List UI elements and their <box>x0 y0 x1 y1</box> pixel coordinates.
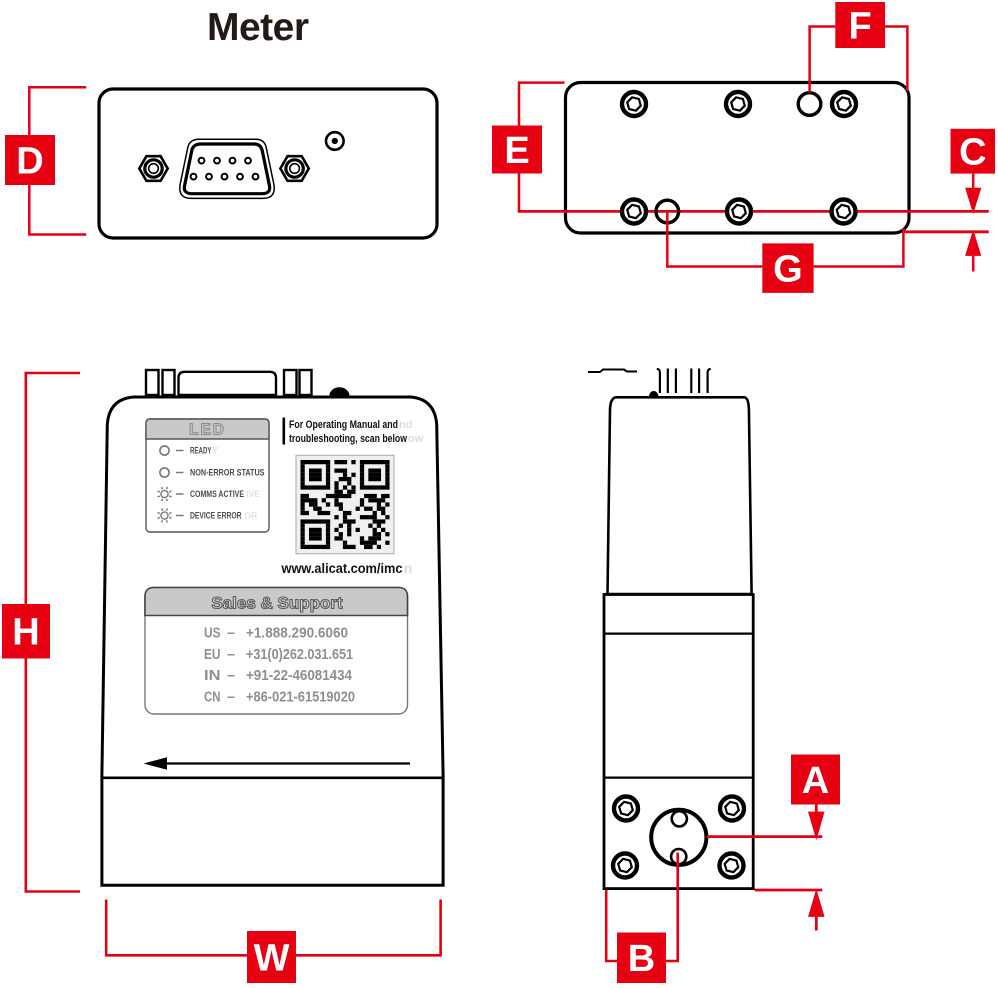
svg-text:B: B <box>628 938 655 980</box>
svg-text:+1.888.290.6060: +1.888.290.6060 <box>246 626 348 642</box>
svg-text:E: E <box>504 130 529 172</box>
svg-text:OR: OR <box>244 511 258 521</box>
svg-text:Y: Y <box>212 446 218 456</box>
svg-text:DEVICE ERROR: DEVICE ERROR <box>190 511 242 521</box>
svg-text:IVE: IVE <box>246 489 260 499</box>
svg-text:Sales & Support: Sales & Support <box>211 594 343 613</box>
svg-text:–: – <box>227 647 235 663</box>
svg-text:A: A <box>802 760 829 802</box>
svg-text:+31(0)262.031.651: +31(0)262.031.651 <box>246 647 353 663</box>
svg-text:IN: IN <box>204 668 221 684</box>
svg-text:C: C <box>959 132 986 174</box>
svg-text:+86-021-61519020: +86-021-61519020 <box>246 689 355 705</box>
svg-text:n: n <box>404 561 412 576</box>
svg-text:troubleshooting, scan below: troubleshooting, scan below <box>289 433 407 445</box>
svg-text:NON-ERROR STATUS: NON-ERROR STATUS <box>190 468 265 478</box>
svg-text:–: – <box>227 689 235 705</box>
svg-text:www.alicat.com/imc: www.alicat.com/imc <box>281 561 403 576</box>
svg-text:US: US <box>204 626 221 642</box>
svg-text:ow: ow <box>408 433 424 445</box>
svg-text:Meter: Meter <box>207 6 309 49</box>
svg-text:–: – <box>227 626 235 642</box>
svg-text:D: D <box>16 141 43 183</box>
svg-text:G: G <box>773 249 803 291</box>
svg-text:LED: LED <box>189 422 226 439</box>
svg-text:CN: CN <box>204 689 221 705</box>
svg-text:–: – <box>227 668 235 684</box>
svg-text:COMMS ACTIVE: COMMS ACTIVE <box>190 489 244 499</box>
svg-text:H: H <box>12 612 39 654</box>
svg-text:+91-22-46081434: +91-22-46081434 <box>246 668 352 684</box>
svg-text:W: W <box>254 938 290 980</box>
svg-text:For Operating Manual and: For Operating Manual and <box>289 419 398 431</box>
svg-text:nd: nd <box>399 419 412 431</box>
svg-text:READY: READY <box>190 446 212 456</box>
svg-text:F: F <box>848 6 871 48</box>
svg-text:EU: EU <box>204 647 221 663</box>
